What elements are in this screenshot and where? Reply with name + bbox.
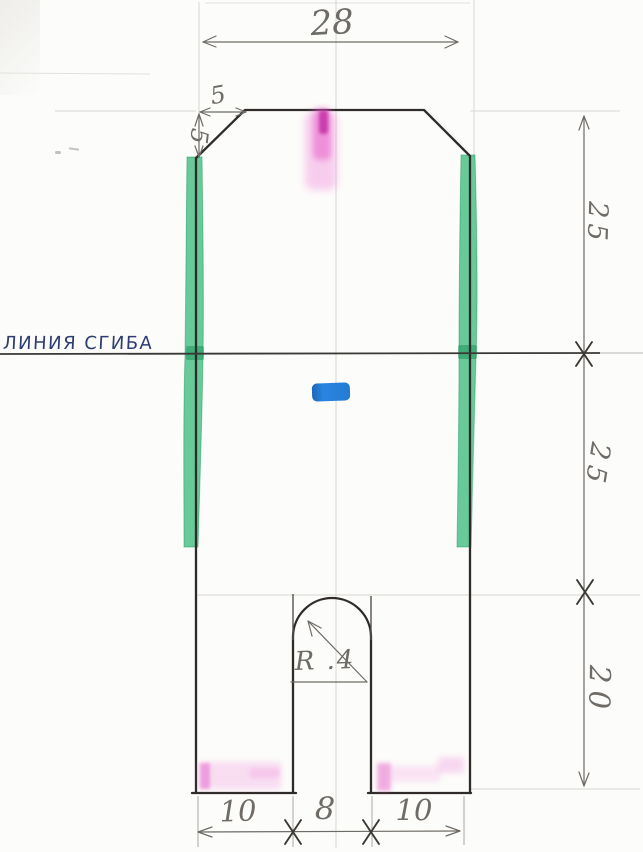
dim-leg-height-label: 20 xyxy=(584,659,614,721)
drawing-canvas xyxy=(0,0,643,852)
scanned-pattern-drawing: 28 5 5 25 25 20 10 8 10 R .4 ЛИНИЯ СГИБА xyxy=(0,0,643,852)
dim-top-width-label: 28 xyxy=(301,4,363,41)
pattern-outline xyxy=(192,110,471,793)
dim-slot-width-label: 8 xyxy=(304,793,346,826)
dim-upper-height-label: 25 xyxy=(582,192,611,255)
construction-guidelines xyxy=(0,0,640,848)
dim-right-leg-width-label: 10 xyxy=(388,796,440,825)
dim-slot-radius-label: R .4 xyxy=(288,647,363,676)
dim-chamfer-vertical-label: 5 xyxy=(186,122,213,151)
fold-line-caption: ЛИНИЯ СГИБА xyxy=(2,333,154,354)
dim-chamfer-horizontal-label: 5 xyxy=(202,81,234,109)
tape-fold-overlap-right xyxy=(458,345,477,359)
dim-left-leg-width-label: 10 xyxy=(212,796,265,827)
green-tape-strips xyxy=(184,155,477,547)
